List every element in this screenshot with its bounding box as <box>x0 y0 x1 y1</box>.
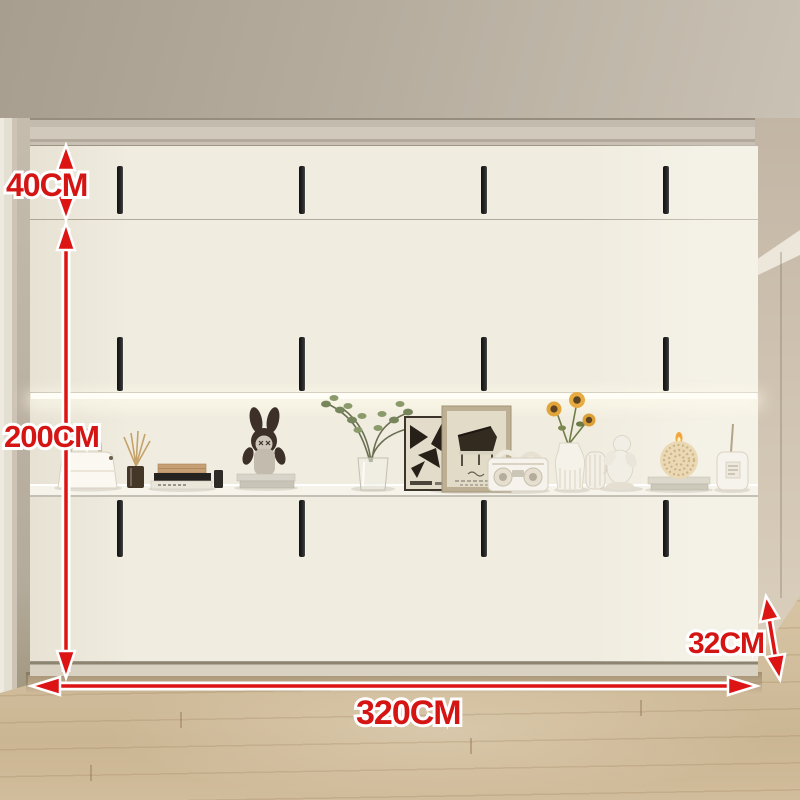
door-handle <box>663 500 669 557</box>
plank-joint <box>640 700 642 716</box>
cabinet-plinth <box>30 662 758 676</box>
door-handle <box>299 166 305 214</box>
lower-door-row <box>30 497 758 662</box>
door-handle <box>117 500 123 557</box>
door-handle <box>299 500 305 557</box>
product-photo-wardrobe: 40CM 200CM 320CM 32CM <box>0 0 800 800</box>
left-wall <box>17 118 30 696</box>
door-handle <box>481 337 487 391</box>
door-handle <box>663 337 669 391</box>
top-cabinet-row <box>30 145 758 220</box>
plank-joint <box>470 738 472 754</box>
left-door-frame <box>0 118 17 696</box>
plank-joint <box>180 712 182 728</box>
led-light-strip <box>31 393 757 399</box>
door-handle <box>299 337 305 391</box>
door-handle <box>117 337 123 391</box>
right-wall <box>755 118 800 670</box>
door-handle <box>663 166 669 214</box>
ceiling <box>0 0 800 122</box>
display-niche <box>30 393 758 497</box>
crown-molding <box>0 118 800 146</box>
tall-door-row <box>30 221 758 393</box>
niche-counter <box>30 484 758 497</box>
door-handle <box>117 166 123 214</box>
door-handle <box>481 500 487 557</box>
plank-joint <box>90 765 92 781</box>
right-wall-seam <box>780 252 782 598</box>
door-handle <box>481 166 487 214</box>
